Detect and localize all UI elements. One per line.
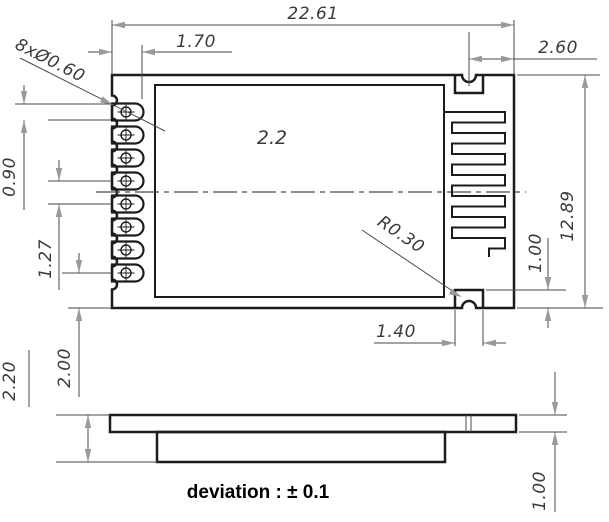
dimension-drawing: 2.2 22.61 1.70 2.60 — [0, 0, 609, 522]
arrowhead — [76, 308, 82, 321]
pin-pad-4 — [112, 173, 144, 190]
arrowhead — [142, 49, 155, 55]
arrowhead — [582, 295, 588, 308]
dim-text: 1.27 — [36, 239, 56, 279]
half-hole-hatch — [466, 415, 471, 432]
dim-pcb-thickness: 1.00 — [519, 372, 567, 512]
arrowhead — [501, 22, 514, 28]
pin-pad-3 — [112, 150, 144, 167]
extension-line — [15, 104, 111, 120]
extension-line — [62, 273, 111, 308]
pin-pad-5 — [112, 196, 144, 213]
arrowhead — [582, 75, 588, 88]
center-label: 2.2 — [257, 127, 287, 149]
arrowhead — [85, 449, 91, 462]
component-block — [157, 432, 445, 462]
dim-text: R0.30 — [374, 212, 428, 258]
hole-crosshair — [118, 104, 135, 120]
dim-pad-width: 0.90 — [0, 85, 111, 210]
hole-crosshair — [118, 265, 135, 281]
arrowhead — [552, 402, 558, 415]
dimensions: 22.61 1.70 2.60 12.89 — [0, 4, 603, 512]
arrowhead — [483, 340, 496, 346]
dim-pin-pitch: 1.27 — [36, 160, 111, 290]
arrowhead — [442, 340, 455, 346]
dim-text: 2.60 — [538, 38, 578, 58]
arrowhead — [99, 49, 112, 55]
arrowhead — [56, 204, 62, 217]
callout-half-hole-radius: R0.30 — [362, 212, 462, 297]
arrowhead — [501, 56, 514, 62]
bottom-half-hole-pad — [455, 290, 483, 308]
hole-crosshair — [118, 219, 135, 235]
dim-text: 1.40 — [376, 322, 416, 342]
pin-pad-6 — [112, 219, 144, 236]
dim-text: 8xØ0.60 — [12, 35, 88, 87]
dim-text: 1.70 — [176, 32, 216, 52]
tolerance-note: deviation : ± 0.1 — [187, 482, 330, 503]
arrowhead — [545, 277, 551, 290]
antenna-meander — [444, 112, 505, 257]
arrowhead — [469, 56, 482, 62]
dim-antenna-hole-offset: 2.60 — [469, 32, 597, 86]
arrowhead — [112, 22, 125, 28]
dim-text: 22.61 — [287, 4, 338, 24]
dim-pad-length: 1.70 — [88, 32, 232, 99]
arrowhead — [21, 120, 27, 133]
pin-pad-8 — [112, 265, 144, 282]
dim-text: 1.00 — [530, 471, 550, 511]
arrowhead — [21, 91, 27, 104]
side-view — [110, 415, 516, 462]
extension-line — [56, 415, 158, 462]
dim-text: 2.00 — [55, 348, 75, 388]
arrowhead — [552, 432, 558, 445]
extension-line — [519, 415, 567, 432]
dim-text: 1.00 — [526, 233, 546, 273]
drawing-sheet: 2.2 22.61 1.70 2.60 — [0, 0, 609, 522]
dim-text: 2.20 — [0, 361, 20, 401]
extension-line — [112, 20, 514, 75]
shield-outline — [155, 85, 444, 297]
arrowhead — [545, 308, 551, 321]
dim-half-hole-pad-width: 1.40 — [374, 310, 506, 346]
pin-pad-7 — [112, 242, 144, 259]
hole-crosshair — [118, 173, 135, 189]
pcb-strip — [110, 415, 516, 432]
dim-last-pin-to-edge: 2.00 — [55, 253, 111, 397]
arrowhead — [56, 168, 62, 181]
extension-line — [455, 310, 483, 346]
top-view: 2.2 — [96, 75, 526, 308]
hole-crosshair — [118, 196, 135, 212]
dim-half-hole-pad-depth: 1.00 — [486, 233, 566, 328]
dim-text: 12.89 — [558, 190, 578, 241]
hole-crosshair — [118, 127, 135, 143]
arrowhead — [76, 260, 82, 273]
pin-pad-2 — [112, 127, 144, 144]
dim-text: 0.90 — [0, 157, 20, 197]
hole-crosshair — [118, 150, 135, 166]
hole-crosshair — [118, 242, 135, 258]
arrowhead — [85, 415, 91, 428]
dim-overall-width: 22.61 — [112, 4, 514, 75]
